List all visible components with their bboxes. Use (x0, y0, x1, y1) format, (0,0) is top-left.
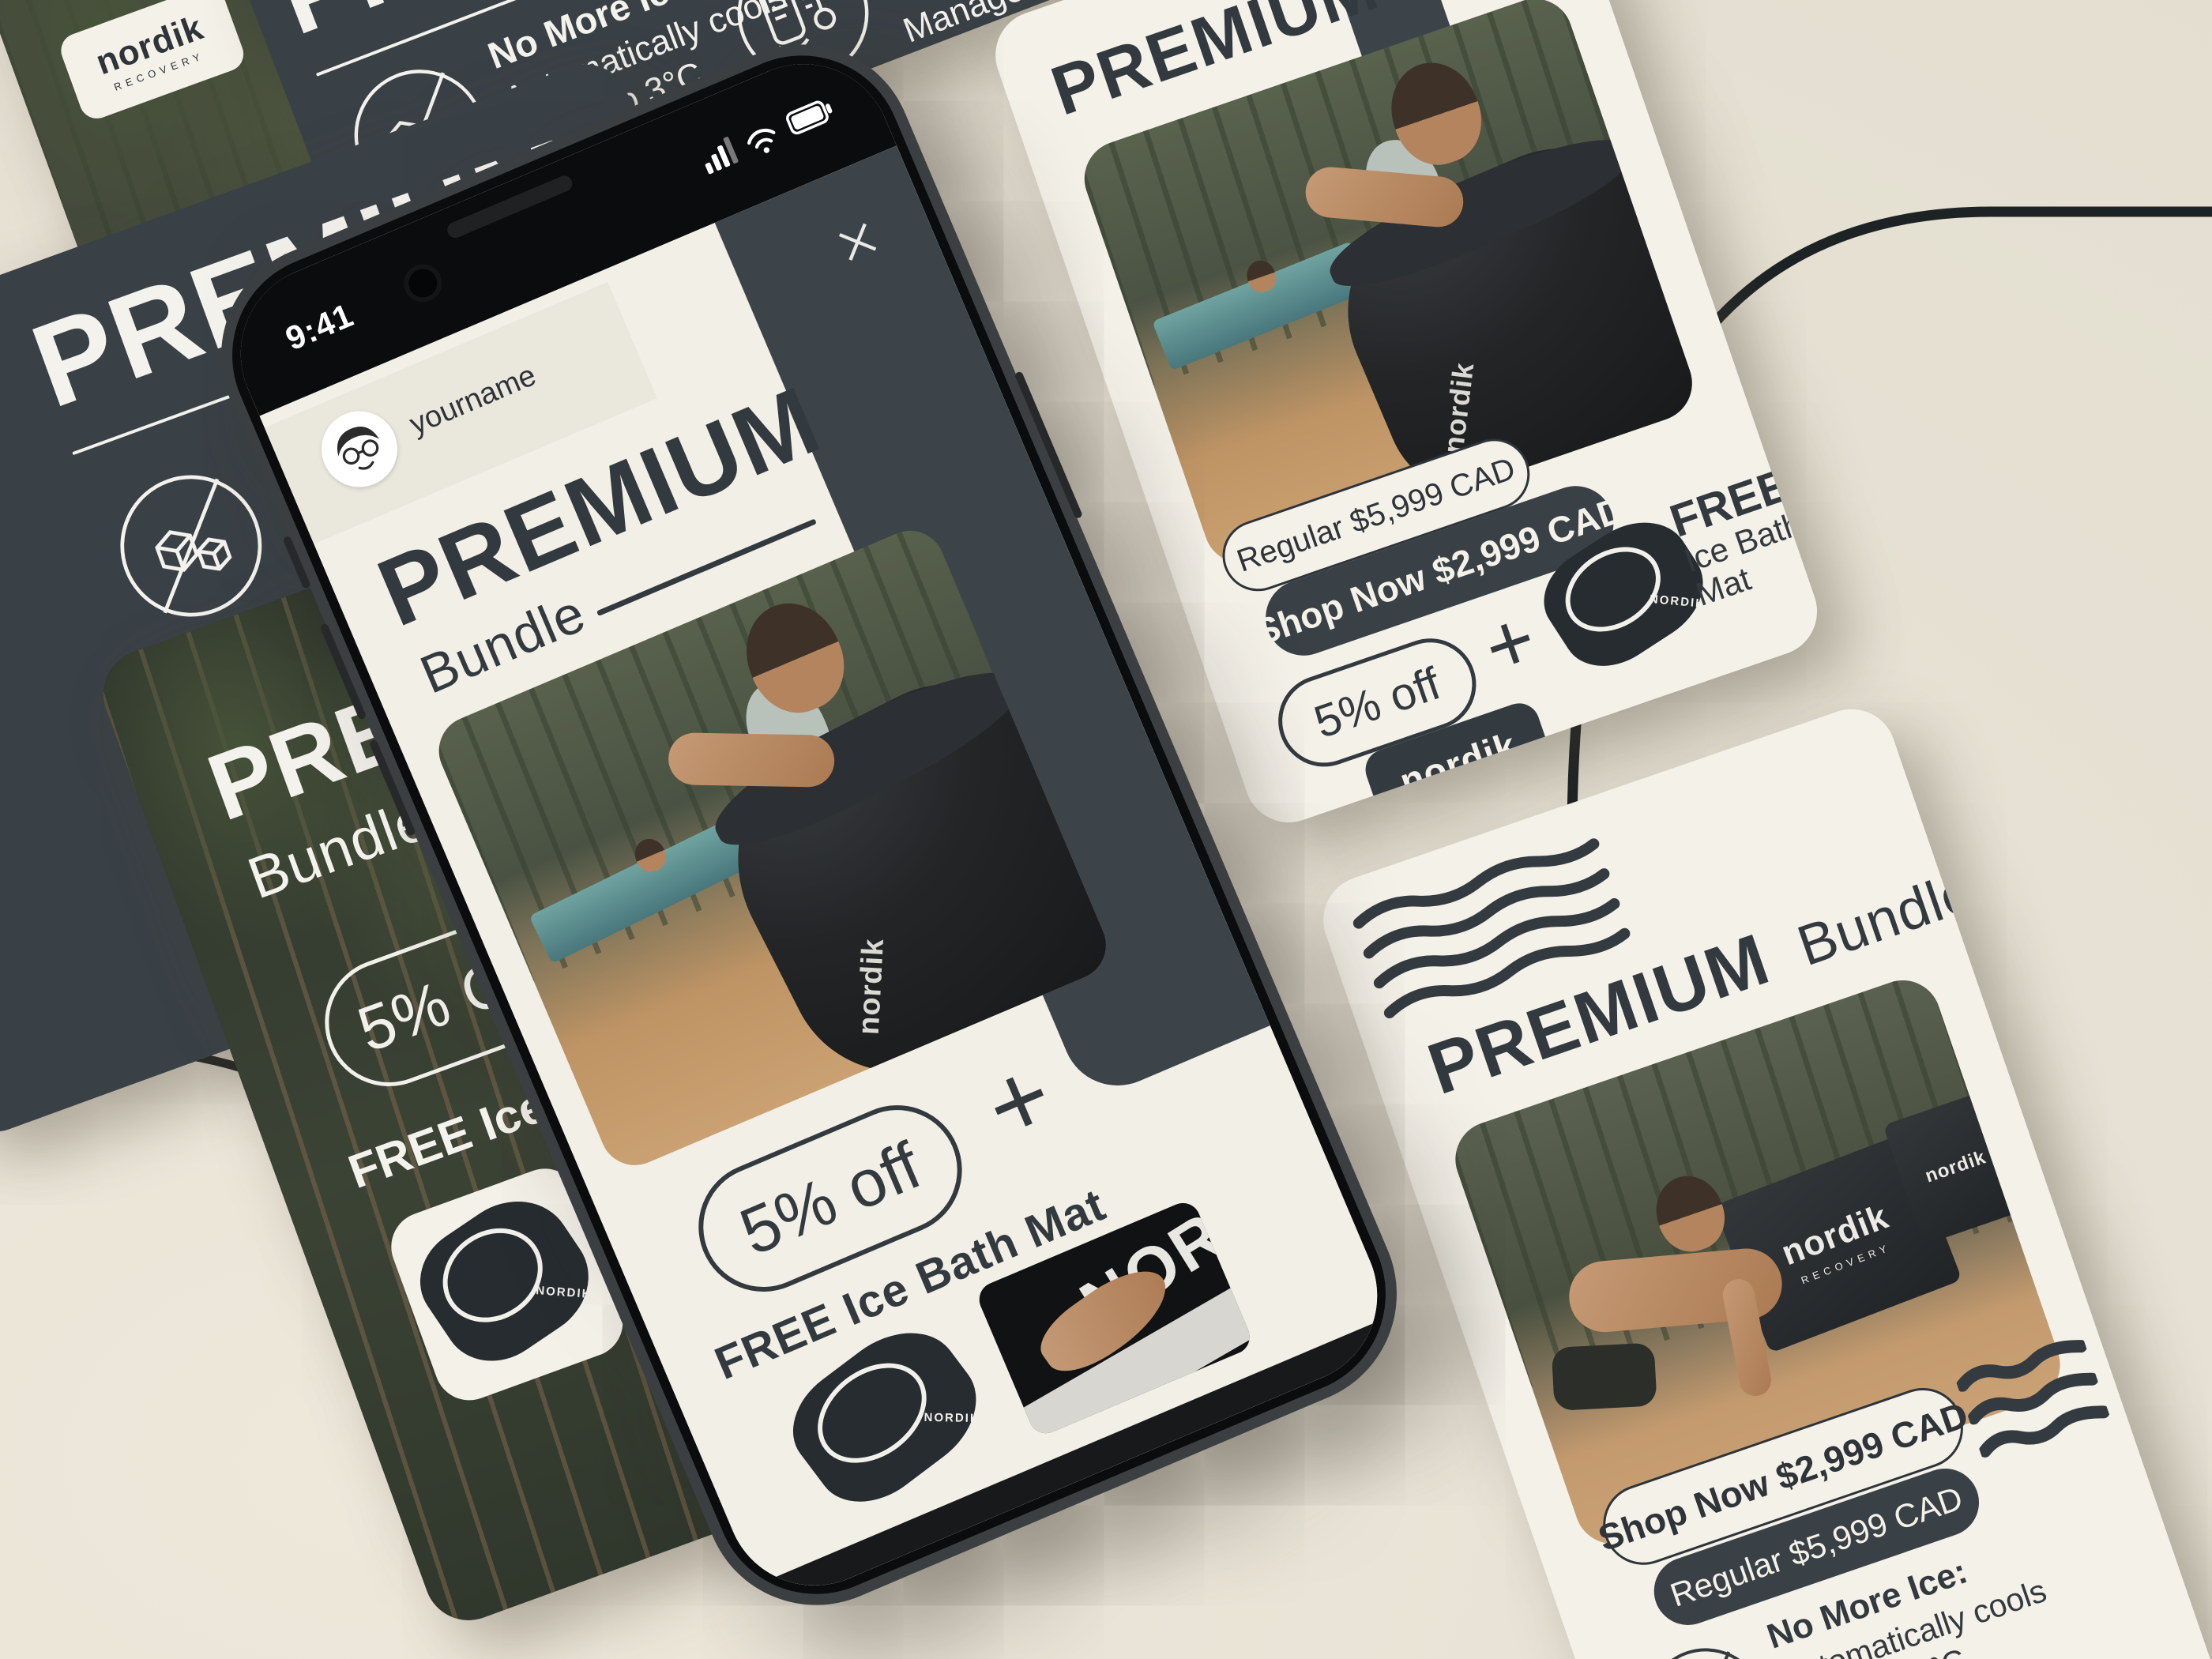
mockup-scene: nordik RECOVERY nordik RECOVERY PREMIUM … (0, 0, 2212, 1659)
see-more-label[interactable]: See More (970, 1499, 1158, 1608)
no-ice-icon (1625, 1627, 1785, 1659)
chevron-up-icon[interactable] (1015, 1488, 1072, 1532)
mat-brand-label: NORDIK (924, 1411, 980, 1425)
card-subheading: Bundle (1791, 862, 1981, 975)
discount-label: 5% off (729, 1127, 931, 1270)
brand-logo: nordik (1923, 1146, 1989, 1187)
brand-logo-sub: RECOVERY (1420, 771, 1518, 814)
tub-logo: nordik (852, 937, 891, 1035)
brand-logo: nordik (1396, 727, 1522, 802)
more-options-dots[interactable]: • • • (1290, 1371, 1350, 1417)
speaker-grill (445, 173, 574, 240)
plus-sign: + (1474, 596, 1546, 690)
clock: 9:41 (280, 296, 359, 359)
status-icons (694, 87, 849, 184)
front-camera (404, 265, 442, 302)
home-indicator[interactable] (1004, 1529, 1232, 1613)
post-card-light-right: PREMIUM Bundle nordik RECOVERY nordik Sh… (1311, 698, 2212, 1659)
signal-wifi-battery-icons (694, 87, 848, 180)
battery-icon (786, 98, 835, 135)
plus-sign: + (971, 1041, 1066, 1159)
man-arm (668, 732, 834, 788)
mat-brand-label: NORDIK (536, 1284, 592, 1301)
man-shorts (1551, 1342, 1657, 1411)
